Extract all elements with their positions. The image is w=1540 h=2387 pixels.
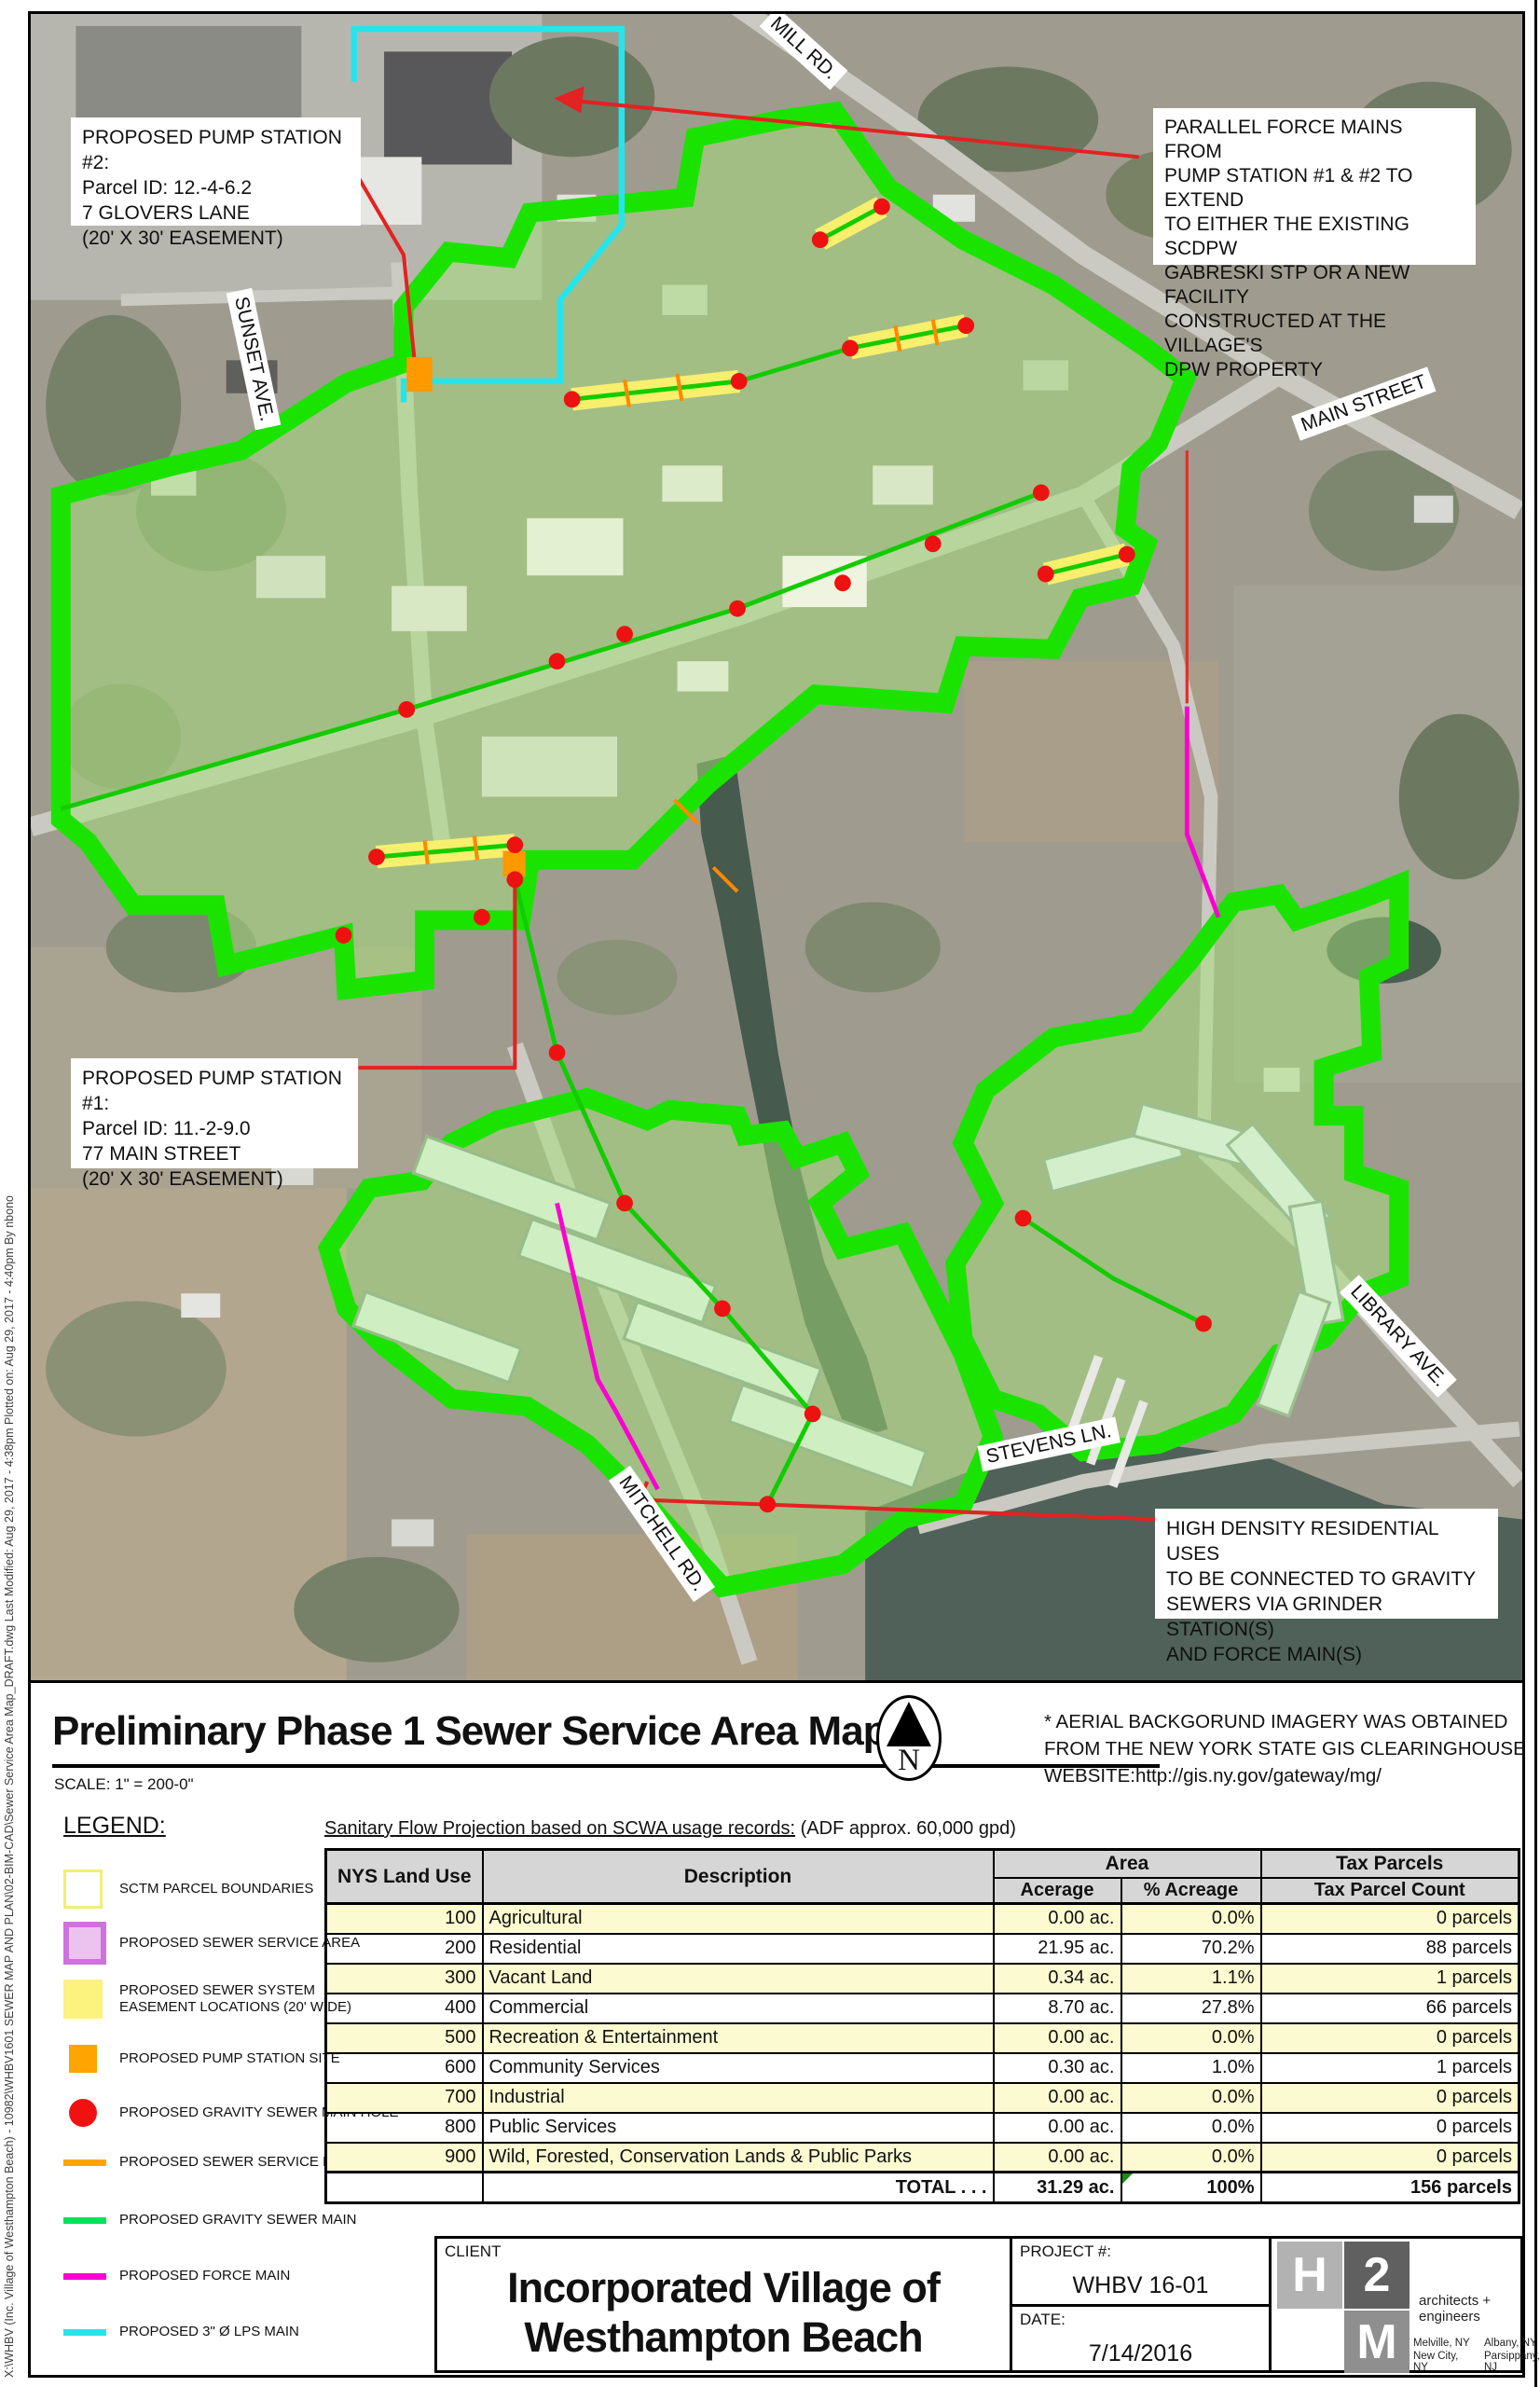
land-use-code: 700	[326, 2083, 483, 2113]
land-use-code: 300	[326, 1964, 483, 1994]
sheet-outer-border	[1534, 0, 1537, 2387]
col-group-tax-parcels: Tax Parcels	[1261, 1850, 1519, 1878]
pct-acreage-value: 0.0%	[1121, 2023, 1261, 2053]
pct-acreage-value: 27.8%	[1121, 1994, 1261, 2023]
legend-item-parcel-boundaries: SCTM PARCEL BOUNDARIES	[63, 1869, 313, 1910]
manhole-swatch	[69, 2099, 97, 2127]
land-use-code: 500	[326, 2023, 483, 2053]
land-use-code: 200	[326, 1934, 483, 1964]
land-use-description: Vacant Land	[483, 1964, 994, 1994]
land-use-code: 400	[326, 1994, 483, 2023]
north-arrow-triangle	[887, 1702, 931, 1746]
legend-label: PROPOSED 3" Ø LPS MAIN	[119, 2324, 299, 2340]
legend-item-lps-main: PROPOSED 3" Ø LPS MAIN	[63, 2327, 299, 2337]
col-group-area: Area	[994, 1850, 1261, 1878]
north-arrow-letter: N	[898, 1744, 920, 1778]
office-location: New City, NY	[1413, 2351, 1471, 2373]
parcel-count-value: 0 parcels	[1261, 2143, 1519, 2173]
scale-text: SCALE: 1" = 200-0"	[54, 1775, 194, 1794]
firm-logo-cell: H 2 M architects + engineers Melville, N…	[1269, 2236, 1523, 2373]
title-underline	[52, 1764, 1160, 1768]
drawing-sheet: X:\WHBV (Inc. Village of Westhampton Bea…	[0, 0, 1540, 2387]
pct-acreage-value: 70.2%	[1121, 1934, 1261, 1964]
legend-item-pump-station: PROPOSED PUMP STATION SITE	[63, 2044, 340, 2074]
date-cell: DATE: 7/14/2016	[1010, 2304, 1272, 2373]
land-use-description: Wild, Forested, Conservation Lands & Pub…	[483, 2143, 994, 2173]
acerage-value: 0.00 ac.	[994, 2083, 1121, 2113]
sanitary-flow-table: NYS Land Use Description Area Tax Parcel…	[324, 1848, 1520, 2204]
pct-acreage-value: 0.0%	[1121, 2113, 1261, 2143]
land-use-description: Community Services	[483, 2053, 994, 2083]
acerage-value: 0.30 ac.	[994, 2053, 1121, 2083]
pct-acreage-value: 1.0%	[1121, 2053, 1261, 2083]
col-header-pct-acreage: % Acreage	[1121, 1878, 1261, 1904]
annotation-parallel-force-mains: PARALLEL FORCE MAINS FROM PUMP STATION #…	[1153, 108, 1476, 265]
acerage-value: 0.00 ac.	[994, 1904, 1121, 1934]
acerage-value: 21.95 ac.	[994, 1934, 1121, 1964]
total-acerage: 31.29 ac.	[994, 2173, 1121, 2203]
client-name: Incorporated Village of Westhampton Beac…	[437, 2263, 1010, 2362]
north-arrow-icon: N	[876, 1695, 942, 1781]
aerial-imagery-note: * AERIAL BACKGORUND IMAGERY WAS OBTAINED…	[1044, 1708, 1529, 1789]
office-location: Albany, NY	[1484, 2338, 1540, 2349]
legend-heading: LEGEND:	[63, 1813, 166, 1840]
table-caption: Sanitary Flow Projection based on SCWA u…	[324, 1818, 1016, 1840]
land-use-code: 600	[326, 2053, 483, 2083]
parcel-count-value: 0 parcels	[1261, 2083, 1519, 2113]
parcel-count-value: 1 parcels	[1261, 2053, 1519, 2083]
firm-tagline: architects + engineers	[1419, 2293, 1520, 2325]
force-main-swatch	[63, 2273, 106, 2280]
project-number-label: PROJECT #:	[1020, 2242, 1111, 2261]
land-use-code: 800	[326, 2113, 483, 2143]
table-caption-underlined: Sanitary Flow Projection based on SCWA u…	[324, 1818, 795, 1839]
firm-offices: Melville, NY Albany, NY New City, NY Par…	[1413, 2338, 1540, 2373]
land-use-code: 900	[326, 2143, 483, 2173]
gravity-sewer-swatch	[63, 2217, 106, 2224]
easement-swatch	[63, 1980, 103, 2019]
legend-label: PROPOSED FORCE MAIN	[119, 2268, 290, 2284]
acerage-value: 8.70 ac.	[994, 1994, 1121, 2023]
acerage-value: 0.34 ac.	[994, 1964, 1121, 1994]
table-row: 200 Residential 21.95 ac. 70.2% 88 parce…	[326, 1934, 1519, 1964]
table-row: 800 Public Services 0.00 ac. 0.0% 0 parc…	[326, 2113, 1519, 2143]
acerage-value: 0.00 ac.	[994, 2113, 1121, 2143]
col-header-land-use: NYS Land Use	[326, 1850, 483, 1904]
parcel-count-value: 1 parcels	[1261, 1964, 1519, 1994]
col-header-acerage: Acerage	[994, 1878, 1121, 1904]
pump-station-swatch	[69, 2045, 97, 2073]
legend-label: PROPOSED PUMP STATION SITE	[119, 2050, 340, 2067]
h2m-logo-h-tile: H	[1277, 2242, 1342, 2309]
land-use-description: Industrial	[483, 2083, 994, 2113]
annotation-pump-station-2: PROPOSED PUMP STATION #2: Parcel ID: 12.…	[71, 117, 361, 226]
plot-file-info: X:\WHBV (Inc. Village of Westhampton Bea…	[3, 1170, 20, 2378]
legend-item-force-main: PROPOSED FORCE MAIN	[63, 2271, 290, 2281]
office-location: Parsippany, NJ	[1484, 2351, 1540, 2373]
project-number-value: WHBV 16-01	[1012, 2272, 1269, 2299]
legend-label: SCTM PARCEL BOUNDARIES	[119, 1881, 313, 1897]
parcel-boundary-swatch	[63, 1870, 103, 1909]
annotation-pump-station-1: PROPOSED PUMP STATION #1: Parcel ID: 11.…	[71, 1058, 358, 1168]
land-use-description: Recreation & Entertainment	[483, 2023, 994, 2053]
acerage-value: 0.00 ac.	[994, 2143, 1121, 2173]
service-area-swatch	[63, 1922, 106, 1965]
land-use-description: Agricultural	[483, 1904, 994, 1934]
legend-item-service-area: PROPOSED SEWER SERVICE AREA	[63, 1921, 360, 1966]
legend-item-gravity-sewer-main: PROPOSED GRAVITY SEWER MAIN	[63, 2215, 357, 2225]
service-lateral-swatch	[63, 2159, 106, 2166]
legend-item-easement-locations: PROPOSED SEWER SYSTEM EASEMENT LOCATIONS…	[63, 1979, 351, 2020]
total-label: TOTAL . . .	[483, 2173, 994, 2203]
parcel-count-value: 0 parcels	[1261, 2023, 1519, 2053]
date-label: DATE:	[1020, 2311, 1066, 2329]
office-location: Melville, NY	[1413, 2338, 1471, 2349]
h2m-logo-m-tile: M	[1344, 2311, 1409, 2373]
table-row: 400 Commercial 8.70 ac. 27.8% 66 parcels	[326, 1994, 1519, 2023]
legend-label: PROPOSED GRAVITY SEWER MAIN	[119, 2212, 357, 2228]
client-cell: CLIENT Incorporated Village of Westhampt…	[434, 2236, 1012, 2373]
h2m-logo-2-tile: 2	[1344, 2242, 1409, 2309]
total-blank-cell	[326, 2173, 483, 2203]
table-caption-rest: (ADF approx. 60,000 gpd)	[795, 1818, 1016, 1839]
project-number-cell: PROJECT #: WHBV 16-01	[1010, 2236, 1272, 2307]
pct-acreage-value: 0.0%	[1121, 2083, 1261, 2113]
table-row: 300 Vacant Land 0.34 ac. 1.1% 1 parcels	[326, 1964, 1519, 1994]
table-total-row: TOTAL . . . 31.29 ac. 100% 156 parcels	[326, 2173, 1519, 2203]
pct-acreage-value: 1.1%	[1121, 1964, 1261, 1994]
total-parcel-count: 156 parcels	[1261, 2173, 1519, 2203]
acerage-value: 0.00 ac.	[994, 2023, 1121, 2053]
lps-main-swatch	[63, 2329, 106, 2336]
col-header-tax-parcel-count: Tax Parcel Count	[1261, 1878, 1519, 1904]
table-row: 600 Community Services 0.30 ac. 1.0% 1 p…	[326, 2053, 1519, 2083]
land-use-code: 100	[326, 1904, 483, 1934]
parcel-count-value: 66 parcels	[1261, 1994, 1519, 2023]
annotation-high-density-residential: HIGH DENSITY RESIDENTIAL USES TO BE CONN…	[1155, 1509, 1498, 1619]
parcel-count-value: 88 parcels	[1261, 1934, 1519, 1964]
table-row: 700 Industrial 0.00 ac. 0.0% 0 parcels	[326, 2083, 1519, 2113]
legend-label: PROPOSED SEWER SYSTEM EASEMENT LOCATIONS…	[119, 1982, 351, 2016]
land-use-description: Commercial	[483, 1994, 994, 2023]
table-header: NYS Land Use Description Area Tax Parcel…	[326, 1850, 1519, 1904]
map-title: Preliminary Phase 1 Sewer Service Area M…	[52, 1708, 887, 1755]
date-value: 7/14/2016	[1012, 2340, 1269, 2367]
col-header-description: Description	[483, 1850, 994, 1904]
table-row: 100 Agricultural 0.00 ac. 0.0% 0 parcels	[326, 1904, 1519, 1934]
land-use-description: Public Services	[483, 2113, 994, 2143]
client-label: CLIENT	[445, 2242, 501, 2261]
pct-acreage-value: 0.0%	[1121, 2143, 1261, 2173]
parcel-count-value: 0 parcels	[1261, 2113, 1519, 2143]
table-row: 500 Recreation & Entertainment 0.00 ac. …	[326, 2023, 1519, 2053]
land-use-description: Residential	[483, 1934, 994, 1964]
pct-acreage-value: 0.0%	[1121, 1904, 1261, 1934]
table-row: 900 Wild, Forested, Conservation Lands &…	[326, 2143, 1519, 2173]
aerial-map: PROPOSED PUMP STATION #2: Parcel ID: 12.…	[31, 14, 1522, 1683]
total-pct-acreage: 100%	[1121, 2173, 1261, 2203]
parcel-count-value: 0 parcels	[1261, 1904, 1519, 1934]
